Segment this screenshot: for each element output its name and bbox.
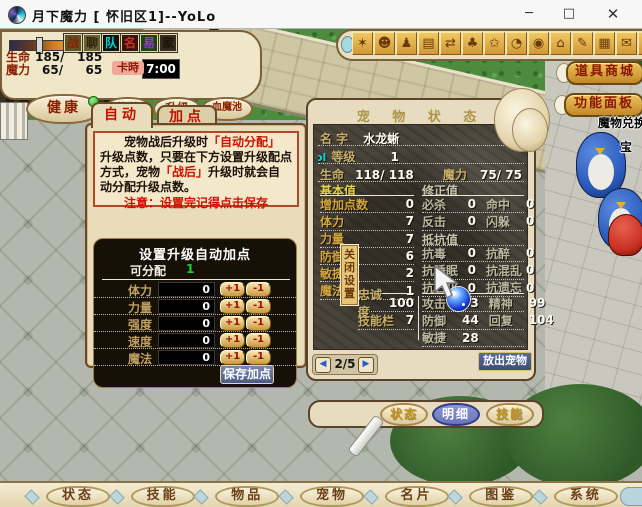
mp-label: 魔力 [6, 63, 30, 77]
combat-value: 99 [529, 296, 546, 310]
function-panel-button[interactable]: 功能面板 [564, 93, 642, 117]
profile-card-icon[interactable]: ▤ [418, 32, 439, 55]
name-toggle[interactable]: 名 [122, 35, 138, 51]
combat-row: 防御 44 回复 104 [422, 312, 524, 329]
minus-one-button[interactable]: -1 [246, 333, 271, 348]
diamond-connector-icon [532, 489, 548, 505]
combat-value: 104 [529, 313, 554, 327]
mp-current: 65/ [35, 63, 63, 77]
minus-one-button[interactable]: -1 [246, 350, 271, 365]
memo-icon[interactable]: ✉ [616, 32, 637, 55]
tab-auto[interactable]: 自动 [91, 102, 153, 128]
pet-tab-details[interactable]: 明细 [432, 403, 480, 426]
plus-one-button[interactable]: +1 [220, 316, 245, 331]
orb-sparkle [462, 303, 465, 306]
pager-label: 2/5 [333, 357, 357, 371]
compass-clock-icon[interactable]: ◔ [506, 32, 527, 55]
mod-stat-value: 0 [462, 214, 476, 228]
base-values-header: 基本值 [320, 184, 356, 196]
auto-allocate-dialog: 宠物战后升级时「自动分配」升级点数，只要在下方设置升级配点方式，宠物「战后」升级… [85, 123, 307, 368]
card-time-clock: 7:00 [142, 59, 180, 79]
pet-level-value: 1 [391, 150, 399, 164]
plus-one-button[interactable]: +1 [220, 282, 245, 297]
close-settings-strip[interactable]: 关闭设置 [341, 245, 358, 305]
bottom-bar-end-cap [620, 487, 642, 506]
diamond-connector-icon [109, 489, 125, 505]
family-toggle[interactable]: 家 [160, 35, 176, 51]
window-title: 月下魔力 [ 怀旧区1]--YoLo [32, 6, 216, 25]
bottom-menu-button[interactable]: 物品 [215, 486, 279, 507]
camera-icon[interactable]: ▦ [594, 32, 615, 55]
mod-stat-value: 0 [526, 197, 534, 211]
allocation-row: 强度 0 +1 -1 [94, 315, 296, 332]
observe-eye-icon[interactable]: ◉ [528, 32, 549, 55]
resist-value: 0 [526, 246, 534, 260]
base-stat-value: 6 [406, 249, 414, 263]
diamond-connector-icon [194, 489, 210, 505]
base-stat-row: 力量 7 [320, 231, 414, 248]
mod-stat-value: 0 [462, 197, 476, 211]
stat-value-input[interactable]: 0 [158, 299, 215, 314]
community-icon[interactable]: ♣ [462, 32, 483, 55]
maximize-button[interactable]: □ [552, 4, 586, 24]
stat-label: 强度 [128, 316, 152, 333]
diamond-connector-icon [24, 489, 40, 505]
resist-value: 0 [462, 246, 476, 260]
team-icon[interactable]: ♟ [396, 32, 417, 55]
mp-max: 65 [68, 63, 102, 77]
base-stat-value: 7 [406, 232, 414, 246]
base-stat-value: 2 [406, 266, 414, 280]
resist-label: 抗醉 [486, 245, 526, 262]
info-text-highlight: 「自动分配」 [208, 135, 280, 149]
stat-value-input[interactable]: 0 [158, 350, 215, 365]
panel-title: 设置升级自动加点 [94, 244, 296, 263]
bottom-menu-button[interactable]: 状态 [46, 486, 110, 507]
allocation-row: 体力 0 +1 -1 [94, 281, 296, 298]
resist-label: 抗混乱 [486, 262, 526, 279]
combat-label: 防御 [422, 312, 462, 329]
save-allocation-button[interactable]: 保存加点 [220, 365, 274, 384]
pager-prev-button[interactable]: ◀ [315, 357, 331, 373]
loyalty-value: 100 [389, 296, 414, 310]
column-divider [418, 296, 419, 340]
bottom-menu-items: 状态 技能 物品 宠物 名片 [26, 486, 618, 507]
bottom-menu-button[interactable]: 图鉴 [469, 486, 533, 507]
base-stat-label: 体力 [320, 213, 344, 230]
mod-stat-row: 必杀 0 命中 0 [422, 196, 524, 213]
skillbar-row: 技能栏 7 [358, 312, 414, 329]
minus-one-button[interactable]: -1 [246, 299, 271, 314]
allocation-row: 速度 0 +1 -1 [94, 332, 296, 349]
mod-stat-label: 反击 [422, 213, 462, 230]
resist-label: 抗毒 [422, 245, 462, 262]
minimize-button[interactable]: ─ [512, 4, 546, 24]
window-titlebar: 月下魔力 [ 怀旧区1]--YoLo ─ □ ✕ [0, 0, 642, 29]
allocatable-value: 1 [186, 262, 194, 276]
allocatable-label: 可分配 [130, 262, 166, 279]
base-stat-value: 7 [406, 214, 414, 228]
bottom-menu-item: 状态 [26, 486, 110, 507]
bottom-menu-button[interactable]: 技能 [131, 486, 195, 507]
stat-value-input[interactable]: 0 [158, 316, 215, 331]
dialog-info-text: 宠物战后升级时「自动分配」升级点数，只要在下方设置升级配点方式，宠物「战后」升级… [93, 131, 299, 207]
stat-value-input[interactable]: 0 [158, 282, 215, 297]
bottom-menu-item: 名片 [365, 486, 449, 507]
bottom-menu-item: 宠物 [280, 486, 364, 507]
bottom-menu-item: 图鉴 [449, 486, 533, 507]
base-stats-column: 增加点数 0 体力 7 力量 7 防御 6 [320, 196, 414, 300]
shop-stall-icon[interactable]: ⌂ [550, 32, 571, 55]
stat-label: 力量 [128, 299, 152, 316]
modified-values-header: 修正值 [422, 184, 458, 196]
base-stat-row: 敏捷 2 [320, 265, 414, 282]
skillbar-value: 7 [406, 313, 414, 327]
mod-stat-label: 闪躲 [486, 213, 526, 230]
mod-stat-value: 0 [526, 214, 534, 228]
toolbar-tiles: ✶ ☻ ♟ ▤ ⇄ ♣ ✩ ◔ ◉ ⌂ [352, 32, 642, 55]
bottom-menu-item: 系统 [534, 486, 618, 507]
tools-icon[interactable]: ⚒ [638, 32, 642, 55]
dialog-note: 注意：设置完记得点击保存 [100, 196, 292, 211]
card-time-badge: 卡時 [112, 61, 144, 75]
stat-value-input[interactable]: 0 [158, 333, 215, 348]
name-label: 名 字 [320, 132, 348, 146]
plus-one-button[interactable]: +1 [220, 333, 245, 348]
sign-pen-icon[interactable]: ✎ [572, 32, 593, 55]
diamond-connector-icon [278, 489, 294, 505]
level-label: 等级 [331, 150, 355, 164]
mouse-cursor [433, 266, 461, 304]
penguin-belly [588, 154, 614, 190]
pet-pager: ◀ 2/5 ▶ [312, 354, 378, 375]
combat-row: 敏捷 28 [422, 330, 524, 347]
stat-label: 魔法 [128, 350, 152, 367]
combat-label: 敏捷 [422, 329, 462, 346]
red-pet-npc[interactable] [608, 214, 642, 256]
overlap-artifact: ol [318, 151, 326, 164]
trade-toggle[interactable]: 易 [141, 35, 157, 51]
minus-one-button[interactable]: -1 [246, 282, 271, 297]
scroll-curl-inner [512, 108, 548, 152]
stat-label: 体力 [128, 282, 152, 299]
pet-tab-band: 状态 明细 技能 [308, 400, 544, 428]
combat-label: 精神 [489, 295, 529, 312]
plus-one-button[interactable]: +1 [220, 350, 245, 365]
trade-icon[interactable]: ⇄ [440, 32, 461, 55]
combat-value: 44 [462, 313, 479, 327]
mod-stat-label: 命中 [486, 196, 526, 213]
allocation-row: 力量 0 +1 -1 [94, 298, 296, 315]
loyalty-row: 忠诚度 100 [358, 295, 414, 312]
bottom-menu-item: 技能 [111, 486, 195, 507]
bottom-menu-button[interactable]: 名片 [385, 486, 449, 507]
allocation-panel: 设置升级自动加点 可分配 1 体力 0 +1 -1 力量 0 + [93, 238, 297, 388]
app-logo-icon [8, 6, 26, 24]
pet-tab-status[interactable]: 状态 [380, 403, 428, 426]
close-button[interactable]: ✕ [596, 4, 630, 24]
bottom-menu-button[interactable]: 宠物 [300, 486, 364, 507]
diamond-connector-icon [448, 489, 464, 505]
resist-value: 0 [462, 263, 476, 277]
action-emote-icon[interactable]: ✩ [484, 32, 505, 55]
base-stat-row: 体力 7 [320, 213, 414, 230]
item-mall-button[interactable]: 道具商城 [566, 61, 642, 85]
pet-level-row: ol 等级 1 [318, 146, 524, 164]
bottom-menu-button[interactable]: 系统 [554, 486, 618, 507]
mod-stat-label: 必杀 [422, 196, 462, 213]
plus-one-button[interactable]: +1 [220, 299, 245, 314]
skillbar-label: 技能栏 [358, 312, 394, 329]
info-text: 宠物战后升级时 [124, 135, 208, 149]
divider-line [102, 279, 290, 280]
info-text-highlight: 「战后」 [160, 165, 208, 179]
base-stat-row: 防御 6 [320, 248, 414, 265]
combat-label: 回复 [489, 312, 529, 329]
pager-next-button[interactable]: ▶ [358, 357, 374, 373]
penguin-beak [595, 148, 605, 155]
allocation-row: 魔法 0 +1 -1 [94, 349, 296, 366]
pet-tab-skills[interactable]: 技能 [486, 403, 534, 426]
bottom-menu-bar: 状态 技能 物品 宠物 名片 [0, 481, 642, 507]
white-gate [0, 102, 28, 140]
mod-stat-row: 反击 0 闪躲 0 [422, 213, 524, 230]
chat-icon[interactable]: ☻ [374, 32, 395, 55]
diamond-connector-icon [363, 489, 379, 505]
resist-row: 抗毒 0 抗醉 0 [422, 245, 524, 262]
pet-stats-area: 名 字 水龙蜥 ol 等级 1 生命 118/ 118 魔力 75/ 75 基本… [313, 124, 528, 350]
penguin-beak [616, 202, 626, 209]
pet-name-row: 名 字 水龙蜥 [318, 128, 524, 146]
stat-label: 速度 [128, 333, 152, 350]
player-hud-panel: 战 聊 队 名 易 家 生命 185/ 185 魔力 65/ 65 7:00 卡… [0, 30, 262, 100]
game-window: 战 聊 队 名 易 家 生命 185/ 185 魔力 65/ 65 7:00 卡… [0, 0, 642, 507]
mod-stats-column: 必杀 0 命中 0 反击 0 闪躲 0 [422, 196, 524, 231]
base-stat-row: 增加点数 0 [320, 196, 414, 213]
minus-one-button[interactable]: -1 [246, 316, 271, 331]
pet-name-value: 水龙蜥 [363, 132, 399, 146]
base-stat-value: 0 [406, 197, 414, 211]
release-pet-button[interactable]: 放出宠物 [478, 352, 532, 371]
combat-value: 28 [462, 331, 479, 345]
allocation-rows: 体力 0 +1 -1 力量 0 +1 -1 强度 0 [94, 281, 296, 366]
tree-bottom-right [505, 384, 642, 481]
battle-icon[interactable]: ✶ [352, 32, 373, 55]
bottom-menu-item: 物品 [195, 486, 279, 507]
team-chat-toggle[interactable]: 队 [103, 35, 119, 51]
resist-value: 0 [526, 263, 534, 277]
base-stat-label: 增加点数 [320, 196, 368, 213]
resist-value: 0 [526, 281, 534, 295]
top-toolbar: ✶ ☻ ♟ ▤ ⇄ ♣ ✩ ◔ ◉ ⌂ [336, 29, 642, 61]
